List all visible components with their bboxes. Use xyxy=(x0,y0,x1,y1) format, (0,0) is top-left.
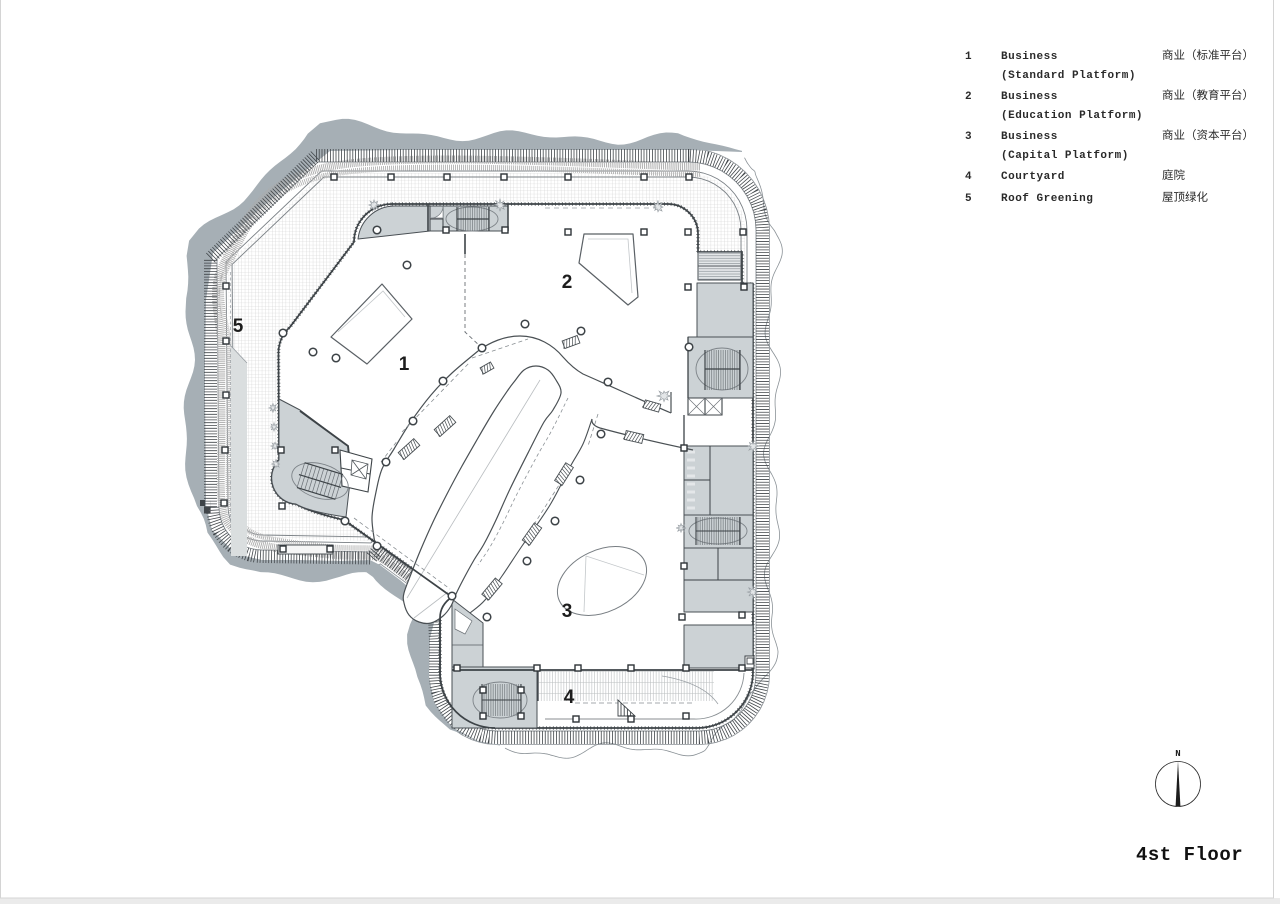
svg-text:3: 3 xyxy=(562,601,573,622)
svg-text:1: 1 xyxy=(965,51,972,63)
svg-text:4: 4 xyxy=(965,171,972,183)
svg-text:(Capital Platform): (Capital Platform) xyxy=(1001,150,1129,162)
svg-text:(Education Platform): (Education Platform) xyxy=(1001,110,1143,122)
svg-text:5: 5 xyxy=(965,193,972,205)
svg-text:5: 5 xyxy=(233,316,244,337)
svg-text:Business: Business xyxy=(1001,91,1058,103)
svg-text:2: 2 xyxy=(965,91,972,103)
svg-text:Roof Greening: Roof Greening xyxy=(1001,193,1093,205)
svg-text:4st Floor: 4st Floor xyxy=(1136,844,1243,866)
svg-text:N: N xyxy=(1175,749,1180,759)
svg-text:(Standard Platform): (Standard Platform) xyxy=(1001,70,1136,82)
svg-text:3: 3 xyxy=(965,131,972,143)
svg-text:2: 2 xyxy=(562,272,573,293)
svg-text:Courtyard: Courtyard xyxy=(1001,171,1065,183)
svg-text:Business: Business xyxy=(1001,51,1058,63)
svg-text:1: 1 xyxy=(399,354,410,375)
svg-text:4: 4 xyxy=(564,687,575,708)
svg-text:Business: Business xyxy=(1001,131,1058,143)
